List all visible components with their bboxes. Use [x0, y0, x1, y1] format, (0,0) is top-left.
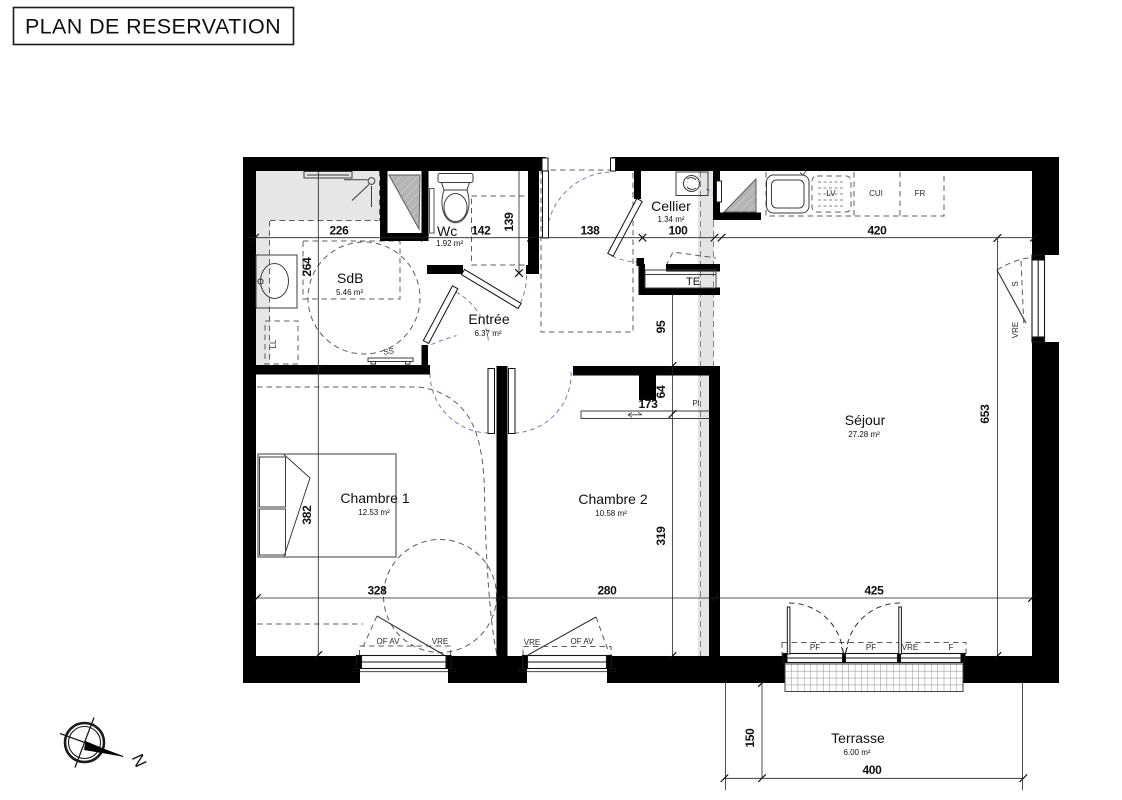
svg-text:1.34 m²: 1.34 m² — [657, 215, 684, 224]
svg-text:5.46 m²: 5.46 m² — [336, 288, 363, 297]
svg-text:142: 142 — [471, 224, 491, 238]
svg-text:Chambre 1: Chambre 1 — [340, 490, 409, 506]
svg-text:VRE: VRE — [432, 637, 448, 646]
svg-text:12.53 m²: 12.53 m² — [358, 508, 390, 517]
svg-text:138: 138 — [580, 224, 600, 238]
svg-text:328: 328 — [367, 584, 387, 598]
svg-text:LL: LL — [269, 339, 278, 348]
svg-text:1.92 m²: 1.92 m² — [436, 239, 463, 248]
svg-text:6.37 m²: 6.37 m² — [474, 329, 501, 338]
svg-text:280: 280 — [597, 584, 617, 598]
svg-text:VRE: VRE — [902, 643, 918, 652]
svg-text:F: F — [949, 643, 954, 652]
svg-text:264: 264 — [300, 257, 314, 277]
svg-text:SS: SS — [383, 346, 395, 356]
svg-text:TE: TE — [686, 276, 700, 288]
svg-text:OF AV: OF AV — [377, 637, 401, 646]
svg-text:PF: PF — [866, 643, 876, 652]
svg-text:Wc: Wc — [437, 223, 457, 239]
svg-text:27.28 m²: 27.28 m² — [848, 430, 880, 439]
svg-text:Pl: Pl — [692, 399, 699, 408]
svg-text:6.00 m²: 6.00 m² — [843, 748, 870, 757]
svg-text:95: 95 — [654, 320, 668, 333]
svg-text:LV: LV — [826, 189, 836, 198]
svg-text:Entrée: Entrée — [468, 311, 509, 327]
svg-text:PF: PF — [810, 643, 820, 652]
svg-text:382: 382 — [300, 505, 314, 525]
svg-text:173: 173 — [638, 397, 658, 411]
svg-text:420: 420 — [867, 224, 887, 238]
svg-text:150: 150 — [743, 728, 757, 748]
svg-text:VRE: VRE — [1011, 322, 1020, 338]
svg-text:Chambre 2: Chambre 2 — [578, 491, 647, 507]
svg-text:SdB: SdB — [337, 270, 363, 286]
svg-text:OF AV: OF AV — [571, 637, 595, 646]
svg-text:Séjour: Séjour — [845, 412, 886, 428]
svg-text:653: 653 — [978, 404, 992, 424]
svg-text:10.58 m²: 10.58 m² — [595, 509, 627, 518]
svg-text:CUI: CUI — [869, 189, 883, 198]
svg-text:425: 425 — [864, 584, 884, 598]
svg-text:400: 400 — [862, 763, 882, 777]
svg-text:PLAN DE RESERVATION: PLAN DE RESERVATION — [25, 15, 281, 39]
svg-text:100: 100 — [668, 224, 688, 238]
svg-text:139: 139 — [502, 212, 516, 232]
svg-text:S: S — [1011, 281, 1020, 286]
svg-text:VRE: VRE — [524, 638, 540, 647]
svg-text:FR: FR — [915, 189, 926, 198]
svg-text:Cellier: Cellier — [651, 198, 691, 214]
svg-text:319: 319 — [654, 526, 668, 546]
svg-text:226: 226 — [329, 224, 349, 238]
svg-text:Terrasse: Terrasse — [831, 730, 885, 746]
